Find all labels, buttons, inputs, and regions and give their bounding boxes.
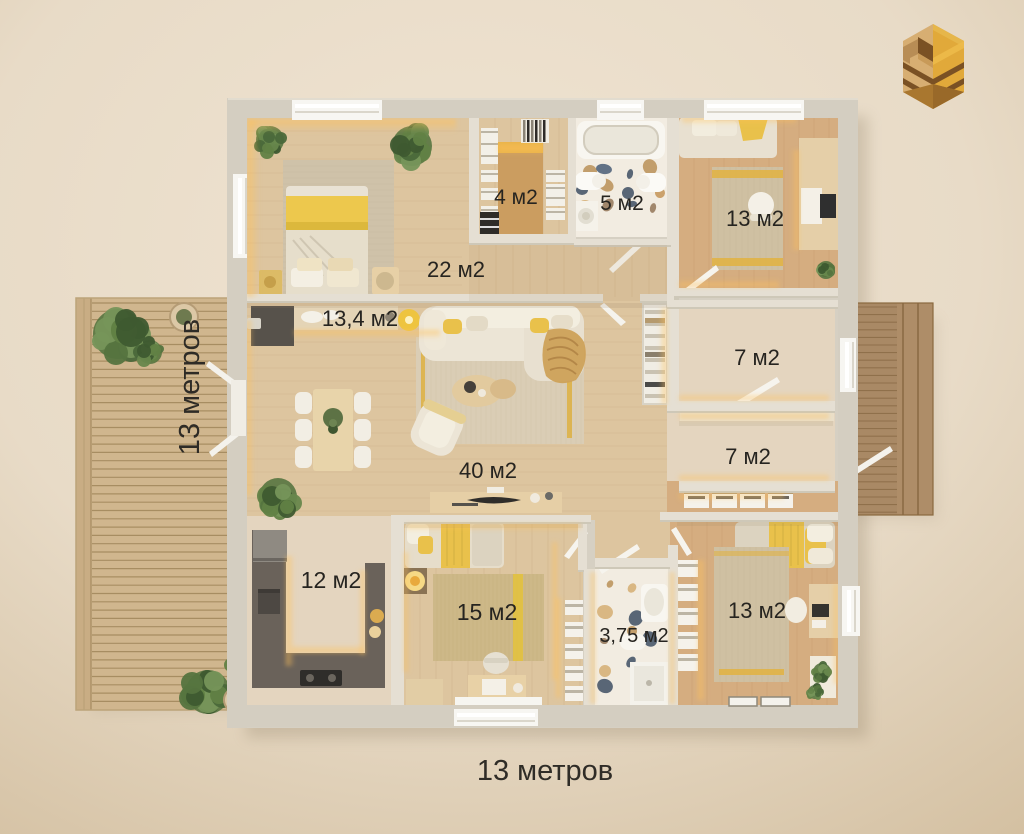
svg-text:7 м2: 7 м2 [725, 444, 771, 469]
svg-text:13 метров: 13 метров [477, 755, 613, 787]
svg-text:4 м2: 4 м2 [494, 186, 538, 209]
svg-text:15 м2: 15 м2 [457, 599, 518, 625]
svg-text:40 м2: 40 м2 [459, 458, 517, 483]
svg-text:12 м2: 12 м2 [301, 567, 362, 593]
svg-text:13 м2: 13 м2 [728, 598, 786, 623]
svg-text:13,4 м2: 13,4 м2 [322, 306, 398, 331]
svg-text:13 м2: 13 м2 [726, 206, 784, 231]
svg-text:3,75 м2: 3,75 м2 [599, 625, 668, 647]
svg-text:22 м2: 22 м2 [427, 257, 485, 282]
svg-text:5 м2: 5 м2 [600, 192, 644, 215]
svg-text:13 метров: 13 метров [174, 319, 206, 455]
svg-text:7 м2: 7 м2 [734, 345, 780, 370]
